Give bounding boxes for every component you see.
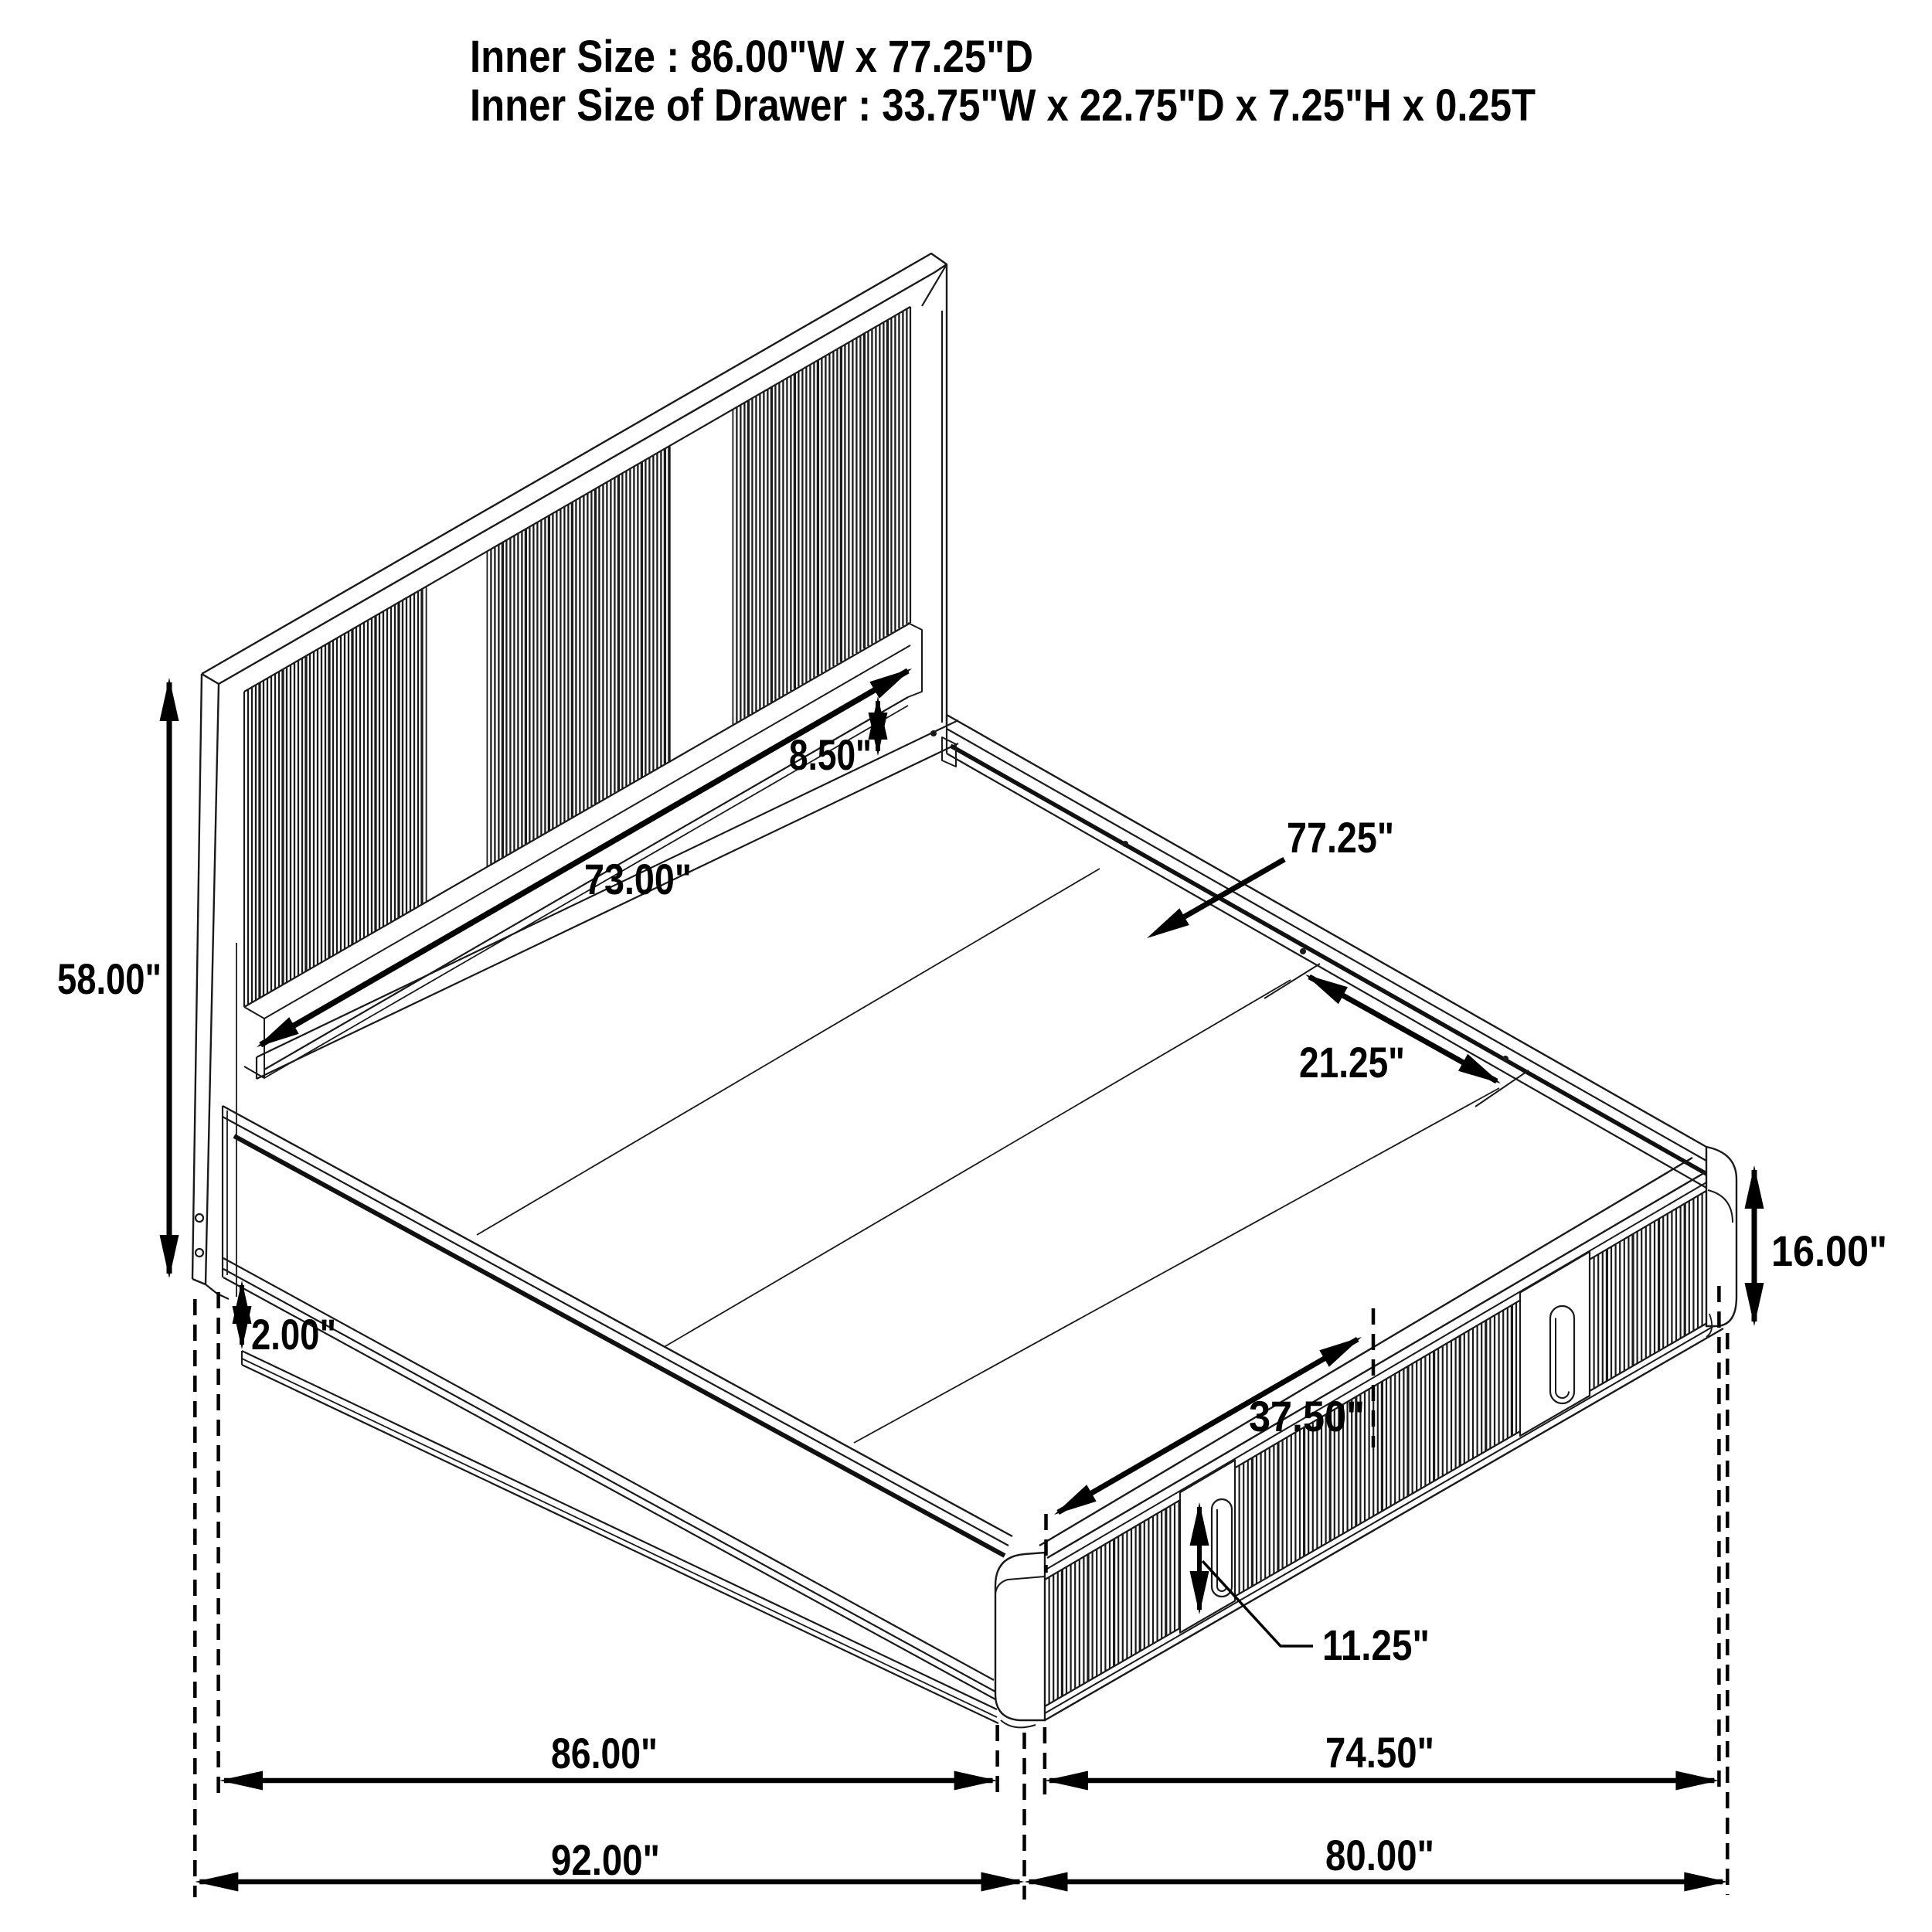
svg-text:16.00": 16.00" (1771, 1226, 1887, 1275)
svg-text:8.50": 8.50" (789, 730, 872, 779)
svg-text:92.00": 92.00" (551, 1835, 660, 1884)
svg-text:Inner Size of Drawer : 33.75"W: Inner Size of Drawer : 33.75"W x 22.75"D… (470, 80, 1536, 131)
svg-text:Inner Size : 86.00"W x 77.25"D: Inner Size : 86.00"W x 77.25"D (470, 32, 1033, 82)
svg-text:37.50": 37.50" (1249, 1392, 1365, 1440)
svg-text:11.25": 11.25" (1322, 1621, 1430, 1669)
svg-text:80.00": 80.00" (1325, 1831, 1434, 1879)
svg-text:2.00": 2.00" (251, 1310, 336, 1359)
svg-text:21.25": 21.25" (1299, 1038, 1405, 1087)
svg-text:77.25": 77.25" (1287, 813, 1394, 862)
svg-text:73.00": 73.00" (584, 855, 692, 903)
svg-text:74.50": 74.50" (1325, 1728, 1434, 1777)
svg-text:58.00": 58.00" (57, 954, 162, 1003)
svg-text:86.00": 86.00" (551, 1729, 658, 1777)
